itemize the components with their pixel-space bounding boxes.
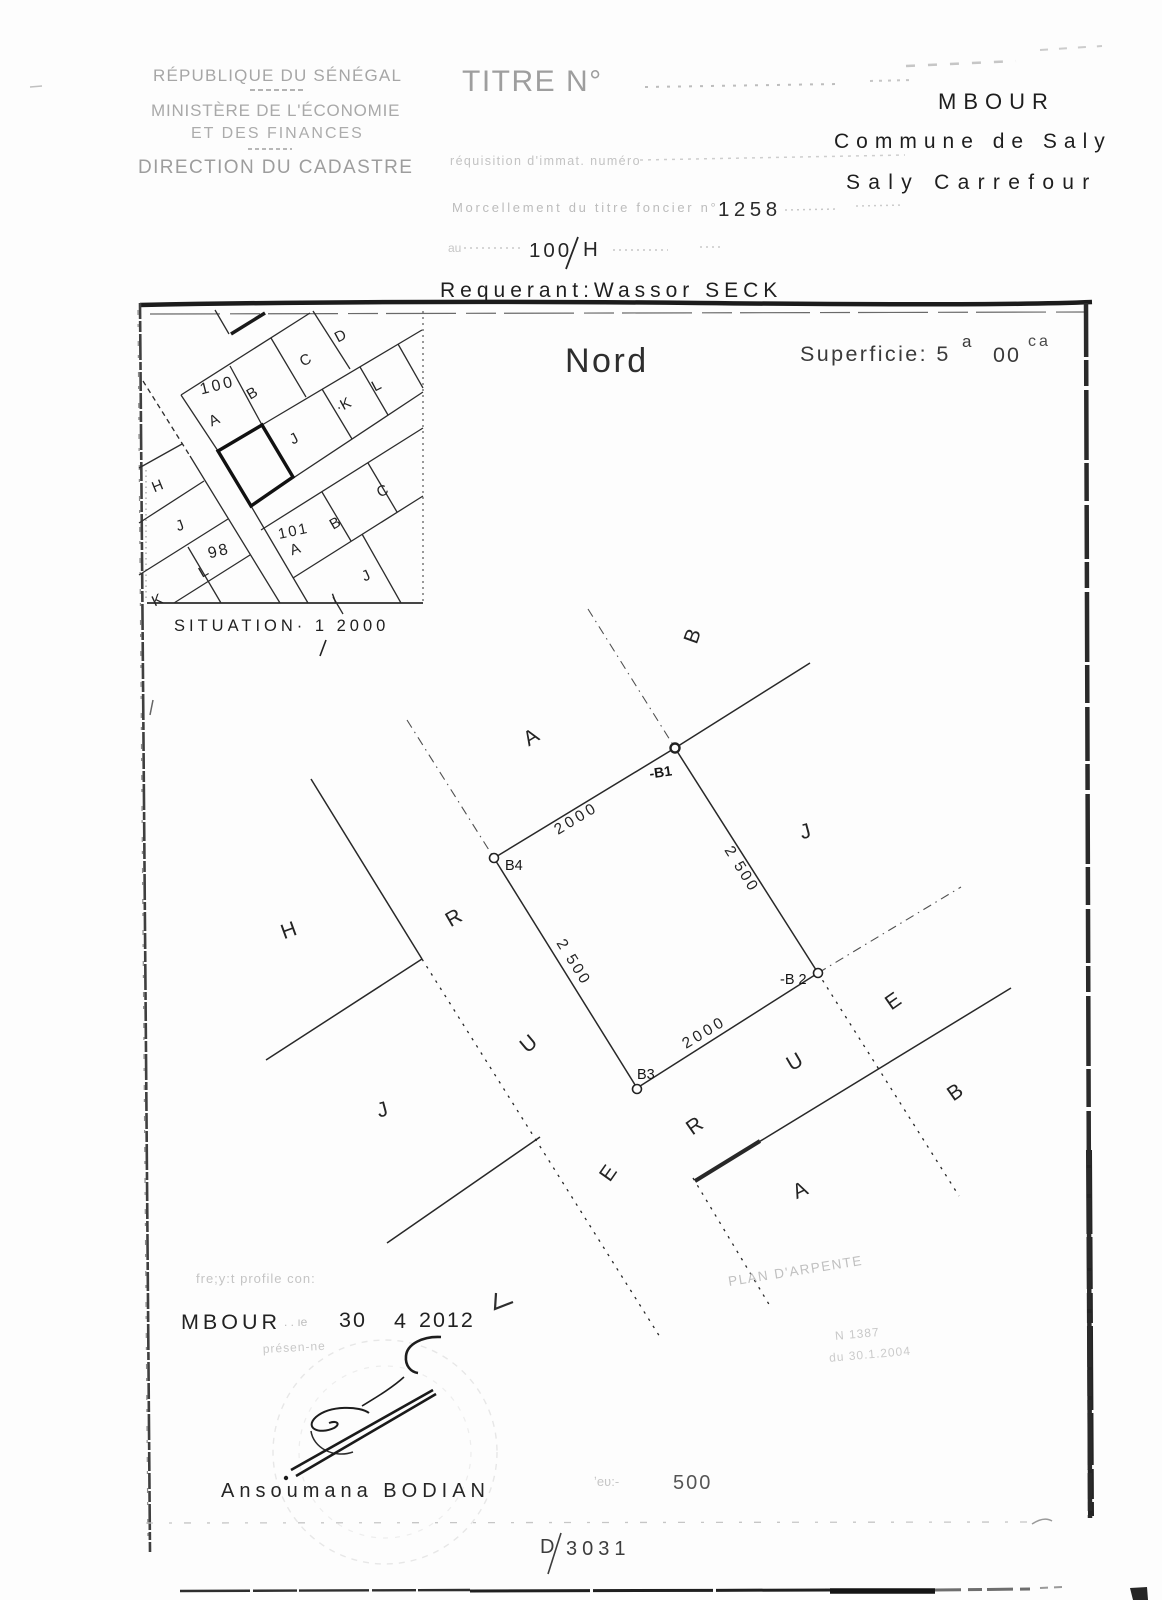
svg-text:Requerant:Wassor SECK: Requerant:Wassor SECK [440, 279, 782, 302]
svg-text:-B1: -B1 [648, 762, 673, 781]
svg-text:Nord: Nord [565, 342, 649, 380]
svg-text:MINISTÈRE DE L'ÉCONOMIE: MINISTÈRE DE L'ÉCONOMIE [151, 101, 400, 120]
svg-text:MBOUR: MBOUR [181, 1310, 281, 1334]
svg-text:B4: B4 [505, 858, 523, 874]
svg-text:500: 500 [673, 1472, 712, 1494]
svg-text:Superficie: 5: Superficie: 5 [800, 342, 951, 366]
svg-text:3031: 3031 [566, 1538, 631, 1560]
svg-text:fre;y:t profile con:: fre;y:t profile con: [196, 1271, 316, 1286]
svg-text:00: 00 [993, 343, 1021, 367]
svg-text:TITRE N°: TITRE N° [462, 65, 603, 98]
svg-text:4: 4 [394, 1309, 406, 1333]
svg-text:Saly Carrefour: Saly Carrefour [846, 171, 1098, 194]
svg-text:SITUATION· 1 2000: SITUATION· 1 2000 [174, 617, 389, 635]
svg-text:Ansoumana BODIAN: Ansoumana BODIAN [221, 1480, 490, 1502]
svg-text:au: au [448, 241, 461, 255]
svg-text:D: D [540, 1536, 554, 1558]
svg-text:ET DES FINANCES: ET DES FINANCES [191, 125, 364, 142]
svg-text:B3: B3 [637, 1067, 655, 1083]
svg-text:MBOUR: MBOUR [938, 89, 1055, 114]
svg-text:DIRECTION DU CADASTRE: DIRECTION DU CADASTRE [138, 157, 413, 178]
svg-text:ca: ca [1028, 333, 1051, 350]
svg-text:1258: 1258 [718, 198, 782, 221]
svg-text:-B 2: -B 2 [780, 972, 807, 988]
svg-text:Commune de Saly: Commune de Saly [834, 130, 1112, 153]
svg-text:H: H [583, 238, 598, 261]
svg-text:Morcellement du titre foncier: Morcellement du titre foncier n° [452, 200, 718, 215]
svg-text:. . ıe: . . ıe [284, 1315, 308, 1329]
svg-text:a: a [962, 332, 972, 351]
svg-text:100: 100 [529, 239, 572, 262]
svg-text:ʼeʋ:-: ʼeʋ:- [594, 1474, 619, 1489]
svg-text:30: 30 [339, 1308, 367, 1332]
svg-text:2012: 2012 [419, 1308, 475, 1332]
svg-text:RÉPUBLIQUE DU SÉNÉGAL: RÉPUBLIQUE DU SÉNÉGAL [153, 66, 402, 85]
svg-text:réquisition d'immat. numéro: réquisition d'immat. numéro [450, 154, 641, 168]
